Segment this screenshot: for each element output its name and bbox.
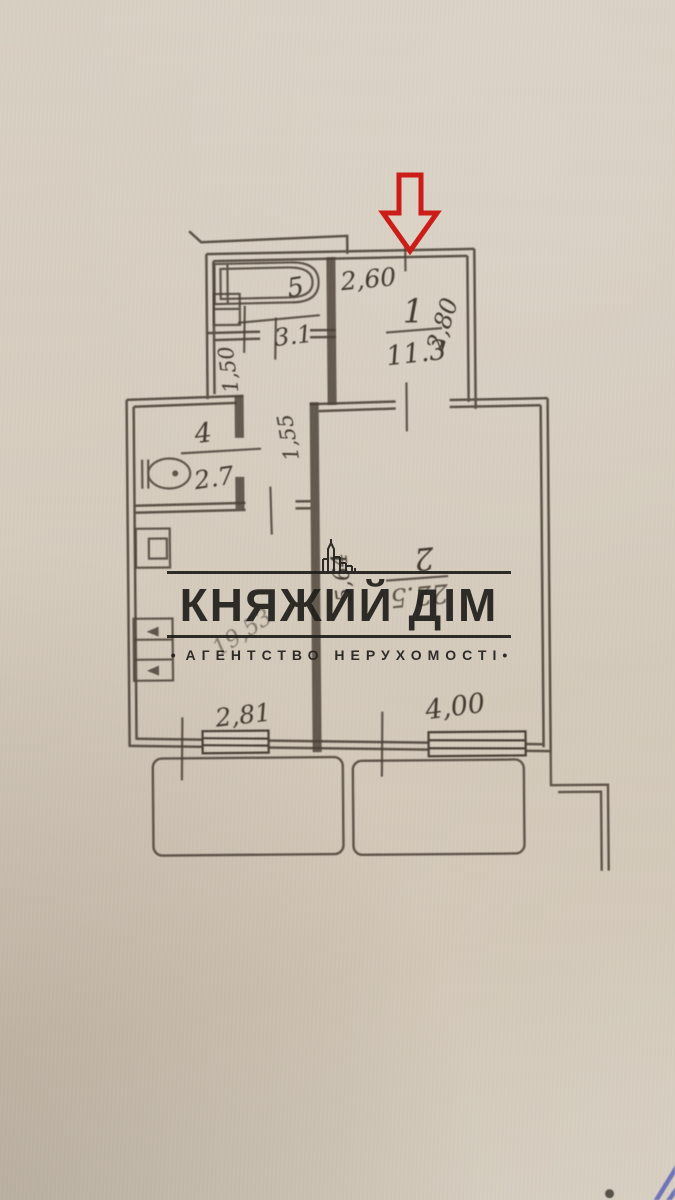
entrance-arrow-layer: [0, 0, 675, 1200]
red-down-arrow-icon: [383, 175, 437, 251]
floor-plan-photo: 2,60 1 11.3 2,80 5 3.1 4 2.7 1,50 1,55 5…: [0, 0, 675, 1200]
